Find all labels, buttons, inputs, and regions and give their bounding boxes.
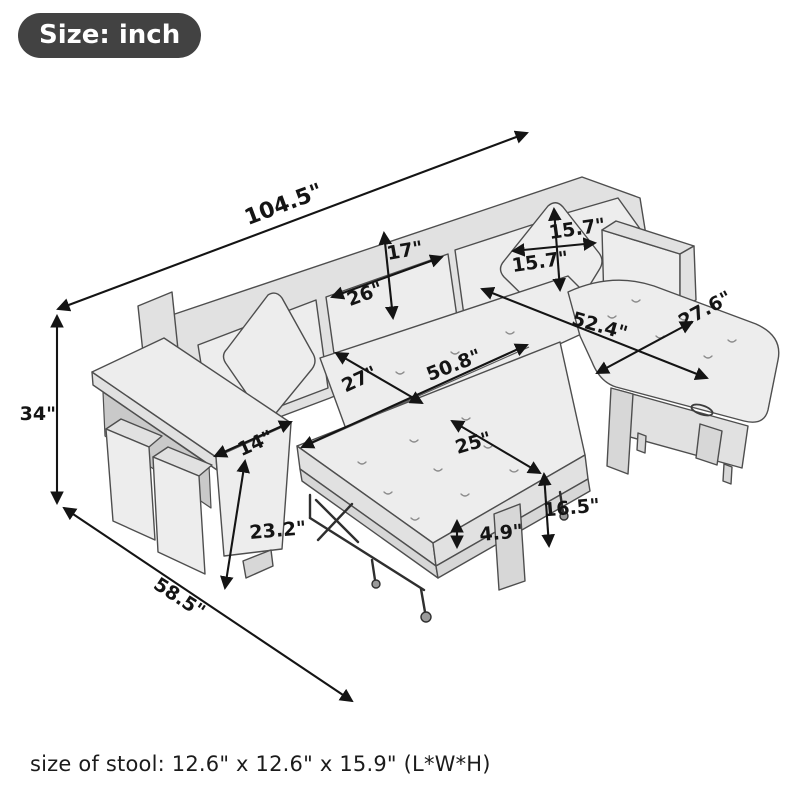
chaise-fabric-flap — [607, 388, 633, 474]
sofa-line-art — [92, 177, 779, 622]
stool-b-front — [153, 457, 205, 574]
size-unit-label: Size: inch — [39, 20, 180, 50]
dim-label: 58.5" — [149, 573, 209, 622]
dim-label: 104.5" — [241, 179, 326, 231]
chaise-leg-left — [637, 433, 646, 453]
dim-label: 23.2" — [249, 517, 307, 544]
dim-overall-depth: 58.5" — [64, 508, 352, 701]
size-unit-badge: Size: inch — [18, 13, 201, 58]
chaise-leg-right — [723, 464, 732, 484]
sleeper-fabric-flap — [494, 504, 525, 590]
dim-overall-height: 34" — [20, 316, 57, 503]
chaise-seat — [568, 280, 779, 422]
stool-size-note: size of stool: 12.6" x 12.6" x 15.9" (L*… — [30, 752, 491, 776]
dim-label: 4.9" — [479, 520, 524, 546]
chaise-fabric-flap-2 — [696, 424, 722, 465]
dim-label: 16.5" — [542, 495, 600, 522]
dimension-diagram-svg: 104.5" 34" 58.5" 17" 26" 15.7" — [0, 0, 800, 800]
caster-wheel — [372, 580, 380, 588]
caster-wheel — [421, 612, 431, 622]
dim-label: 34" — [20, 403, 56, 425]
armrest-foot — [243, 550, 273, 578]
product-dimension-image: 104.5" 34" 58.5" 17" 26" 15.7" — [0, 0, 800, 800]
